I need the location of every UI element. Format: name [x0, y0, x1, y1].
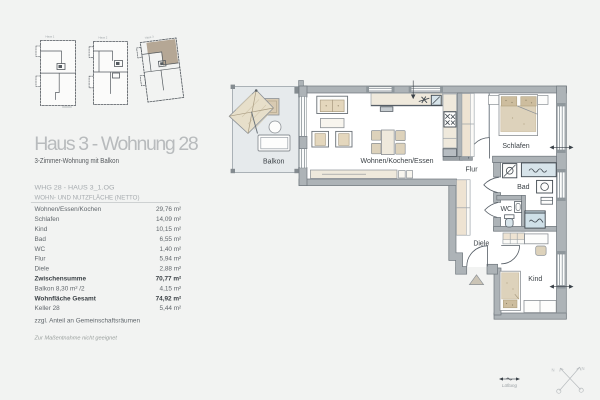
svg-text:Haus 2: Haus 2	[99, 36, 108, 40]
svg-text:1,40 m²: 1,40 m²	[160, 246, 182, 253]
svg-text:WHG 28 - HAUS 3_1.OG: WHG 28 - HAUS 3_1.OG	[35, 185, 115, 192]
svg-text:N: N	[582, 366, 585, 371]
svg-text:Kind: Kind	[528, 276, 542, 283]
svg-text:zzgl. Anteil an Gemeinschaftsr: zzgl. Anteil an Gemeinschaftsräumen	[35, 318, 141, 325]
svg-text:Balkon 8,30 m² /2: Balkon 8,30 m² /2	[35, 285, 86, 292]
svg-text:Bad: Bad	[517, 184, 530, 191]
svg-text:Flur: Flur	[465, 166, 478, 173]
svg-text:Zwischensumme: Zwischensumme	[35, 276, 87, 283]
svg-text:Haus 3 - Wohnung 28: Haus 3 - Wohnung 28	[34, 133, 199, 155]
svg-text:Keller 28: Keller 28	[35, 305, 61, 312]
svg-text:70,77 m²: 70,77 m²	[156, 276, 182, 283]
svg-text:Flur: Flur	[35, 256, 47, 263]
svg-text:Zur Maßentnahme nicht geeignet: Zur Maßentnahme nicht geeignet	[34, 336, 118, 342]
svg-text:3-Zimmer-Wohnung mit Balkon: 3-Zimmer-Wohnung mit Balkon	[35, 158, 120, 165]
svg-text:29,76 m²: 29,76 m²	[156, 206, 181, 213]
svg-text:Wohnen/Essen/Kochen: Wohnen/Essen/Kochen	[35, 206, 102, 213]
svg-text:74,92 m²: 74,92 m²	[156, 295, 182, 302]
svg-text:Diele: Diele	[473, 240, 489, 247]
svg-text:Balkon: Balkon	[263, 159, 285, 166]
svg-text:Schlafen: Schlafen	[35, 216, 60, 223]
svg-text:14,09 m²: 14,09 m²	[156, 216, 181, 223]
svg-text:5,44 m²: 5,44 m²	[160, 305, 182, 312]
svg-text:Wohnfläche Gesamt: Wohnfläche Gesamt	[35, 295, 97, 302]
svg-text:Diele: Diele	[35, 266, 50, 273]
svg-text:Kind: Kind	[35, 226, 48, 233]
svg-text:Haus 3: Haus 3	[145, 35, 155, 40]
svg-text:WOHN- UND NUTZFLÄCHE (NETTO): WOHN- UND NUTZFLÄCHE (NETTO)	[35, 194, 140, 201]
svg-text:5,94 m²: 5,94 m²	[160, 256, 182, 263]
svg-text:Wohnen/Kochen/Essen: Wohnen/Kochen/Essen	[360, 158, 433, 165]
svg-text:2,88 m²: 2,88 m²	[160, 266, 182, 273]
svg-text:Bad: Bad	[35, 236, 47, 243]
svg-text:6,55 m²: 6,55 m²	[160, 236, 182, 243]
svg-text:Haus 1: Haus 1	[46, 35, 55, 39]
svg-text:N: N	[552, 368, 555, 373]
svg-text:Lüftung: Lüftung	[502, 383, 518, 388]
svg-text:WC: WC	[35, 246, 46, 253]
svg-text:10,15 m²: 10,15 m²	[156, 226, 181, 233]
svg-text:4,15 m²: 4,15 m²	[160, 285, 182, 292]
svg-text:WC: WC	[500, 206, 512, 213]
svg-text:Schlafen: Schlafen	[502, 143, 529, 150]
